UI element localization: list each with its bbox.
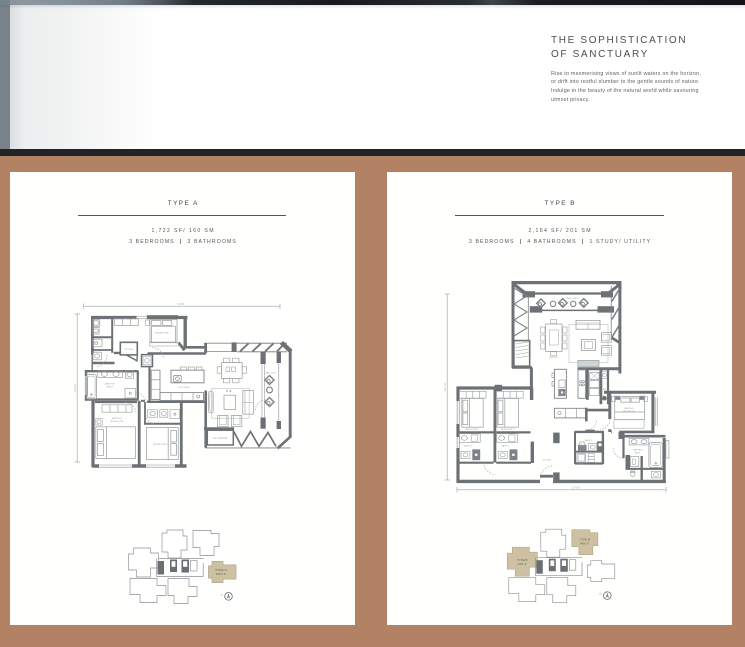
svg-text:BEDROOM: BEDROOM	[111, 421, 124, 423]
svg-text:9400: 9400	[178, 302, 185, 306]
svg-text:BEDROOM: BEDROOM	[623, 411, 635, 413]
svg-text:MASTER: MASTER	[633, 449, 643, 452]
svg-text:BEDROOM 3: BEDROOM 3	[466, 429, 480, 431]
svg-text:15500: 15500	[73, 383, 77, 392]
svg-text:BATH: BATH	[635, 451, 641, 454]
svg-text:BATH 3: BATH 3	[464, 444, 472, 447]
svg-text:KITCHEN: KITCHEN	[178, 387, 190, 389]
svg-text:12400: 12400	[572, 486, 581, 490]
svg-text:#XX-X: #XX-X	[518, 562, 527, 566]
svg-text:BALCONY: BALCONY	[567, 297, 578, 300]
svg-text:#XX-X: #XX-X	[581, 541, 590, 545]
svg-text:BALCONY: BALCONY	[266, 371, 277, 374]
svg-text:N: N	[599, 592, 603, 596]
svg-text:BEDROOM 2: BEDROOM 2	[155, 333, 171, 335]
svg-text:AC LEDGE: AC LEDGE	[213, 437, 228, 440]
svg-text:BATH 4: BATH 4	[585, 439, 593, 442]
svg-text:BATH: BATH	[107, 385, 114, 388]
svg-text:MASTER: MASTER	[624, 407, 634, 410]
svg-text:MASTER: MASTER	[105, 383, 115, 386]
svg-text:FOYER: FOYER	[543, 460, 551, 462]
svg-text:N: N	[220, 593, 224, 597]
svg-text:TYPE B: TYPE B	[580, 538, 590, 542]
svg-text:TYPE B: TYPE B	[517, 558, 527, 562]
svg-text:MASTER: MASTER	[112, 417, 122, 420]
svg-text:BATH 2: BATH 2	[501, 444, 509, 447]
svg-text:18700: 18700	[443, 382, 447, 391]
svg-text:BEDROOM 2: BEDROOM 2	[501, 429, 515, 431]
svg-text:BEDROOM 3: BEDROOM 3	[154, 444, 169, 446]
svg-text:STORE: STORE	[124, 349, 133, 351]
svg-text:#XX-X: #XX-X	[216, 572, 226, 576]
svg-text:DINING: DINING	[549, 357, 558, 359]
